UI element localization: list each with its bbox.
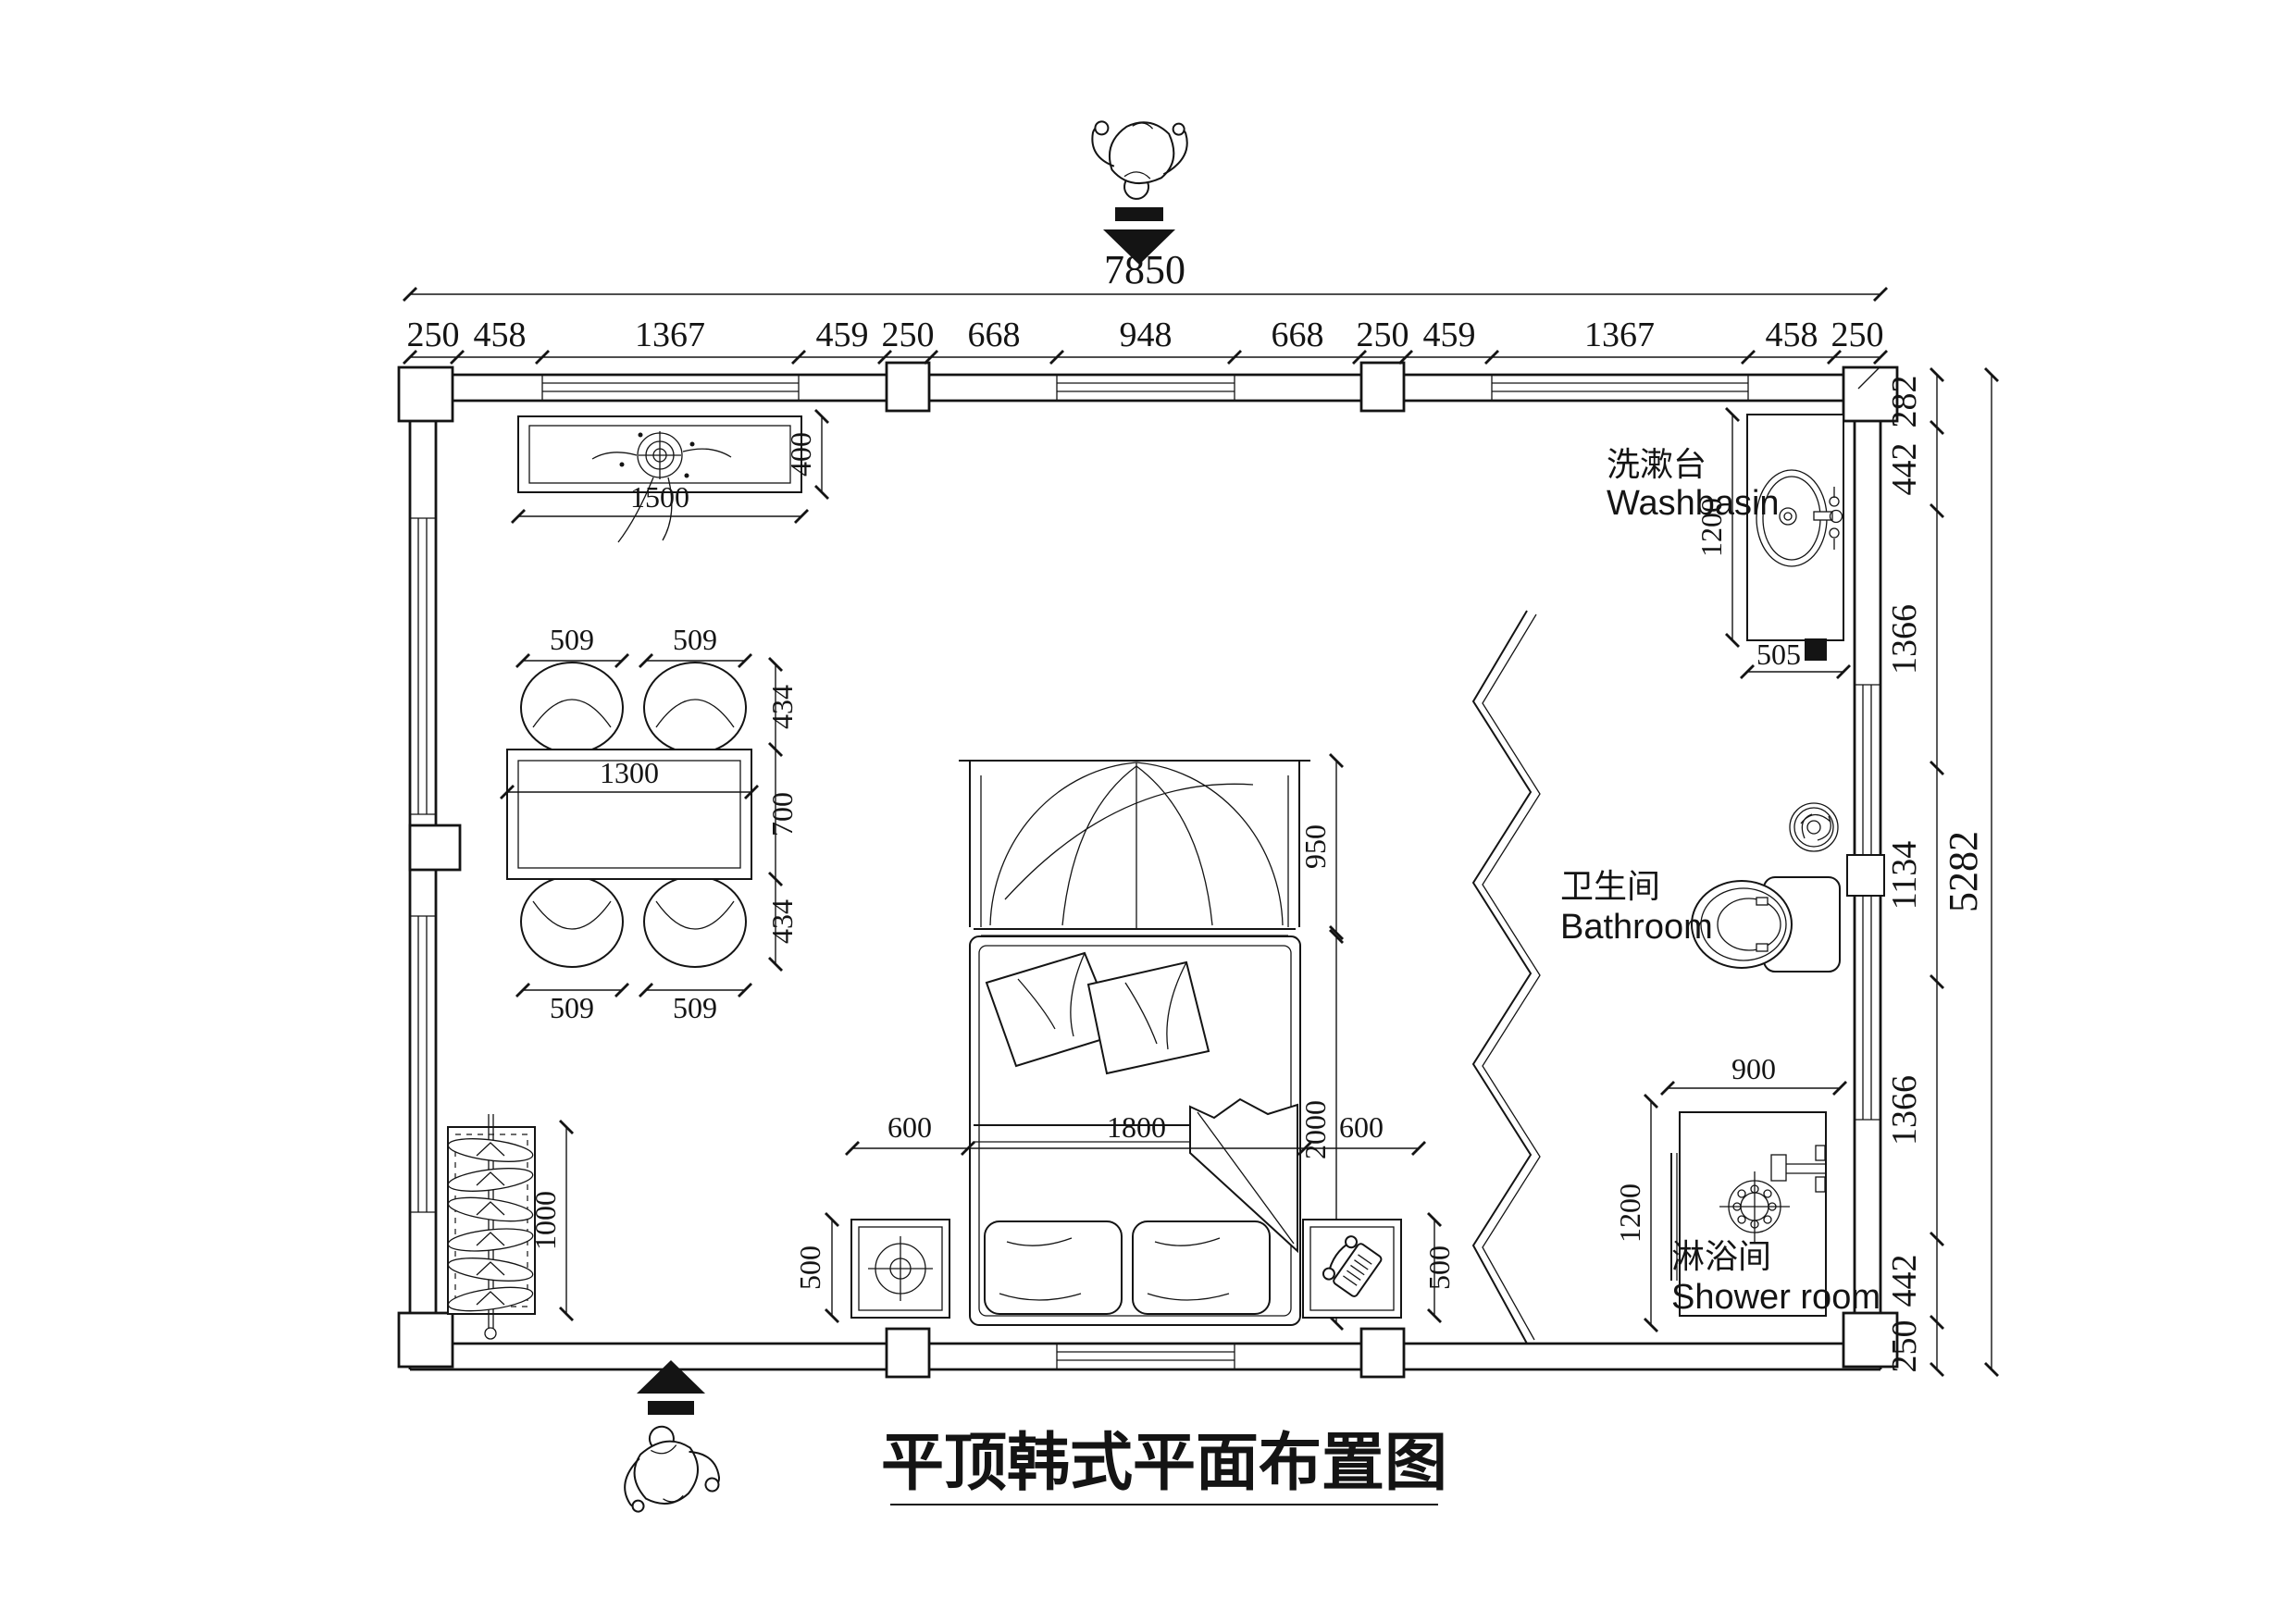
dim-chair-bottom-2: 509 (673, 991, 717, 1024)
bathroom-area: 卫生间 Bathroom (1560, 803, 1840, 972)
dim-right-5: 1366 (1885, 1075, 1924, 1146)
dim-top-10: 459 (1423, 316, 1476, 354)
dim-chair-bottom-1: 509 (550, 991, 594, 1024)
dim-right-1: 282 (1885, 376, 1924, 428)
dim-bed-right: 600 (1339, 1110, 1384, 1144)
arrow-bar-top (1115, 207, 1163, 221)
dim-top-4: 459 (816, 316, 869, 354)
dim-bed-length: 2000 (1298, 1100, 1332, 1159)
dim-top-1: 250 (407, 316, 460, 354)
dim-right-7: 250 (1885, 1320, 1924, 1373)
dim-top-6: 668 (968, 316, 1021, 354)
dim-right-6: 442 (1885, 1255, 1924, 1307)
dim-bed-left: 600 (887, 1110, 932, 1144)
dim-counter-width: 1500 (630, 480, 689, 514)
dim-bed-width: 1800 (1107, 1110, 1166, 1144)
dim-nightstand-right: 500 (1422, 1245, 1456, 1290)
clothes-rack: 1000 (447, 1114, 566, 1339)
dim-right-2: 442 (1885, 443, 1924, 496)
room-label-washbasin-en: Washbasin (1607, 484, 1780, 523)
dim-top-9: 250 (1357, 316, 1409, 354)
counter-with-sink: 1500 400 (518, 416, 822, 542)
dim-chair-top-1: 509 (550, 623, 594, 656)
dim-top-3: 1367 (635, 316, 705, 354)
dim-chair-top-2: 509 (673, 623, 717, 656)
nightstand-left: 500 (793, 1220, 949, 1318)
floor-plan-page: 7850 250 458 1367 459 250 668 948 668 25… (0, 0, 2296, 1623)
dim-top-8: 668 (1272, 316, 1324, 354)
room-label-bathroom-cn: 卫生间 (1560, 867, 1660, 905)
dim-top-5: 250 (882, 316, 935, 354)
folding-partition (1473, 611, 1540, 1344)
dim-counter-depth: 400 (784, 432, 817, 477)
entry-figure-bottom (614, 1360, 723, 1514)
dim-right-4: 1134 (1885, 841, 1924, 911)
dim-top-12: 458 (1766, 316, 1818, 354)
dim-washbasin-width: 505 (1756, 638, 1801, 671)
dim-top-11: 1367 (1584, 316, 1655, 354)
dim-top-13: 250 (1831, 316, 1884, 354)
dim-table-width: 1300 (600, 756, 659, 789)
room-label-bathroom-en: Bathroom (1560, 908, 1713, 947)
room-label-shower-en: Shower room (1671, 1278, 1880, 1317)
dimension-top: 7850 250 458 1367 459 250 668 948 668 25… (407, 247, 1884, 357)
dining-set: 1300 509 509 509 509 434 700 434 (507, 623, 799, 1024)
dim-table-side-3: 434 (765, 899, 799, 944)
dim-shower-width: 900 (1731, 1052, 1776, 1085)
arrow-up-icon (637, 1360, 705, 1394)
dimension-right: 282 442 1366 1134 1366 442 250 5282 (1885, 375, 1992, 1373)
toilet-icon (1692, 877, 1840, 972)
nightstand-right: 500 (1303, 1220, 1456, 1318)
bed-headboard (959, 761, 1310, 935)
title-text: 平顶韩式平面布置图 (881, 1428, 1447, 1498)
room-label-washbasin-cn: 洗漱台 (1607, 445, 1706, 483)
shower-area: 900 1200 淋浴间 Shower room (1613, 1052, 1880, 1325)
washbasin-area: 1200 505 洗漱台 Washbasin (1607, 415, 1843, 672)
entry-figure-top (1087, 117, 1189, 265)
dim-bed-headboard: 950 (1298, 824, 1332, 869)
floor-plan-drawing: 7850 250 458 1367 459 250 668 948 668 25… (0, 0, 2296, 1623)
arrow-bar-bottom (648, 1401, 694, 1415)
room-label-shower-cn: 淋浴间 (1671, 1237, 1771, 1275)
dim-right-3: 1366 (1885, 604, 1924, 675)
dim-top-7: 948 (1120, 316, 1173, 354)
dim-rack: 1000 (528, 1191, 562, 1250)
dim-nightstand-left: 500 (793, 1245, 826, 1290)
drawing-title: 平顶韩式平面布置图 (881, 1428, 1447, 1505)
dim-top-2: 458 (474, 316, 527, 354)
dim-right-total: 5282 (1941, 831, 1986, 912)
dim-table-side-2: 700 (765, 792, 799, 836)
dim-shower-depth: 1200 (1613, 1183, 1646, 1243)
dim-table-side-1: 434 (765, 685, 799, 729)
